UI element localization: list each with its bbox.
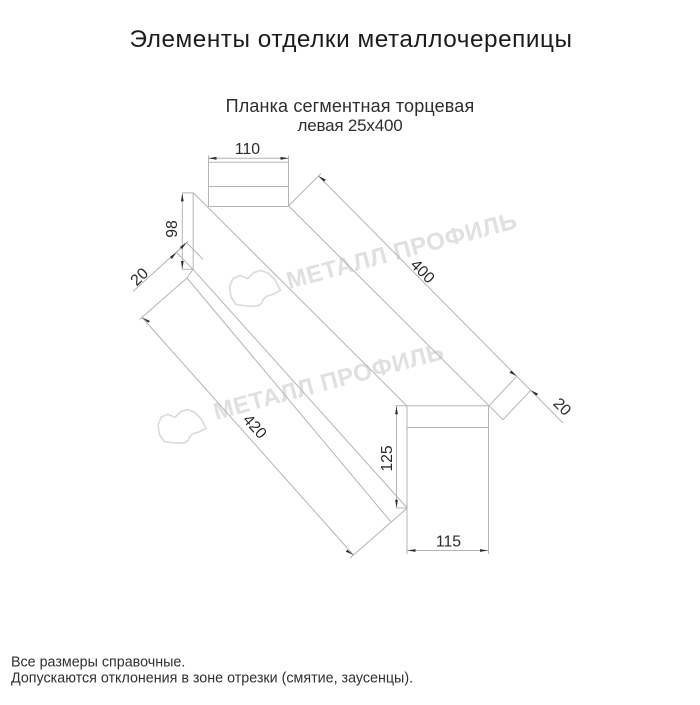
svg-text:125: 125 [379, 445, 396, 472]
svg-text:Допускаются отклонения в зоне: Допускаются отклонения в зоне отрезки (с… [11, 670, 413, 686]
svg-text:левая 25х400: левая 25х400 [298, 116, 403, 135]
svg-text:98: 98 [164, 220, 181, 238]
svg-text:110: 110 [235, 141, 260, 158]
svg-text:Планка сегментная торцевая: Планка сегментная торцевая [226, 96, 475, 116]
svg-text:Элементы отделки металлочерепи: Элементы отделки металлочерепицы [130, 26, 573, 53]
svg-text:115: 115 [436, 534, 461, 551]
svg-text:Все размеры справочные.: Все размеры справочные. [11, 655, 185, 671]
